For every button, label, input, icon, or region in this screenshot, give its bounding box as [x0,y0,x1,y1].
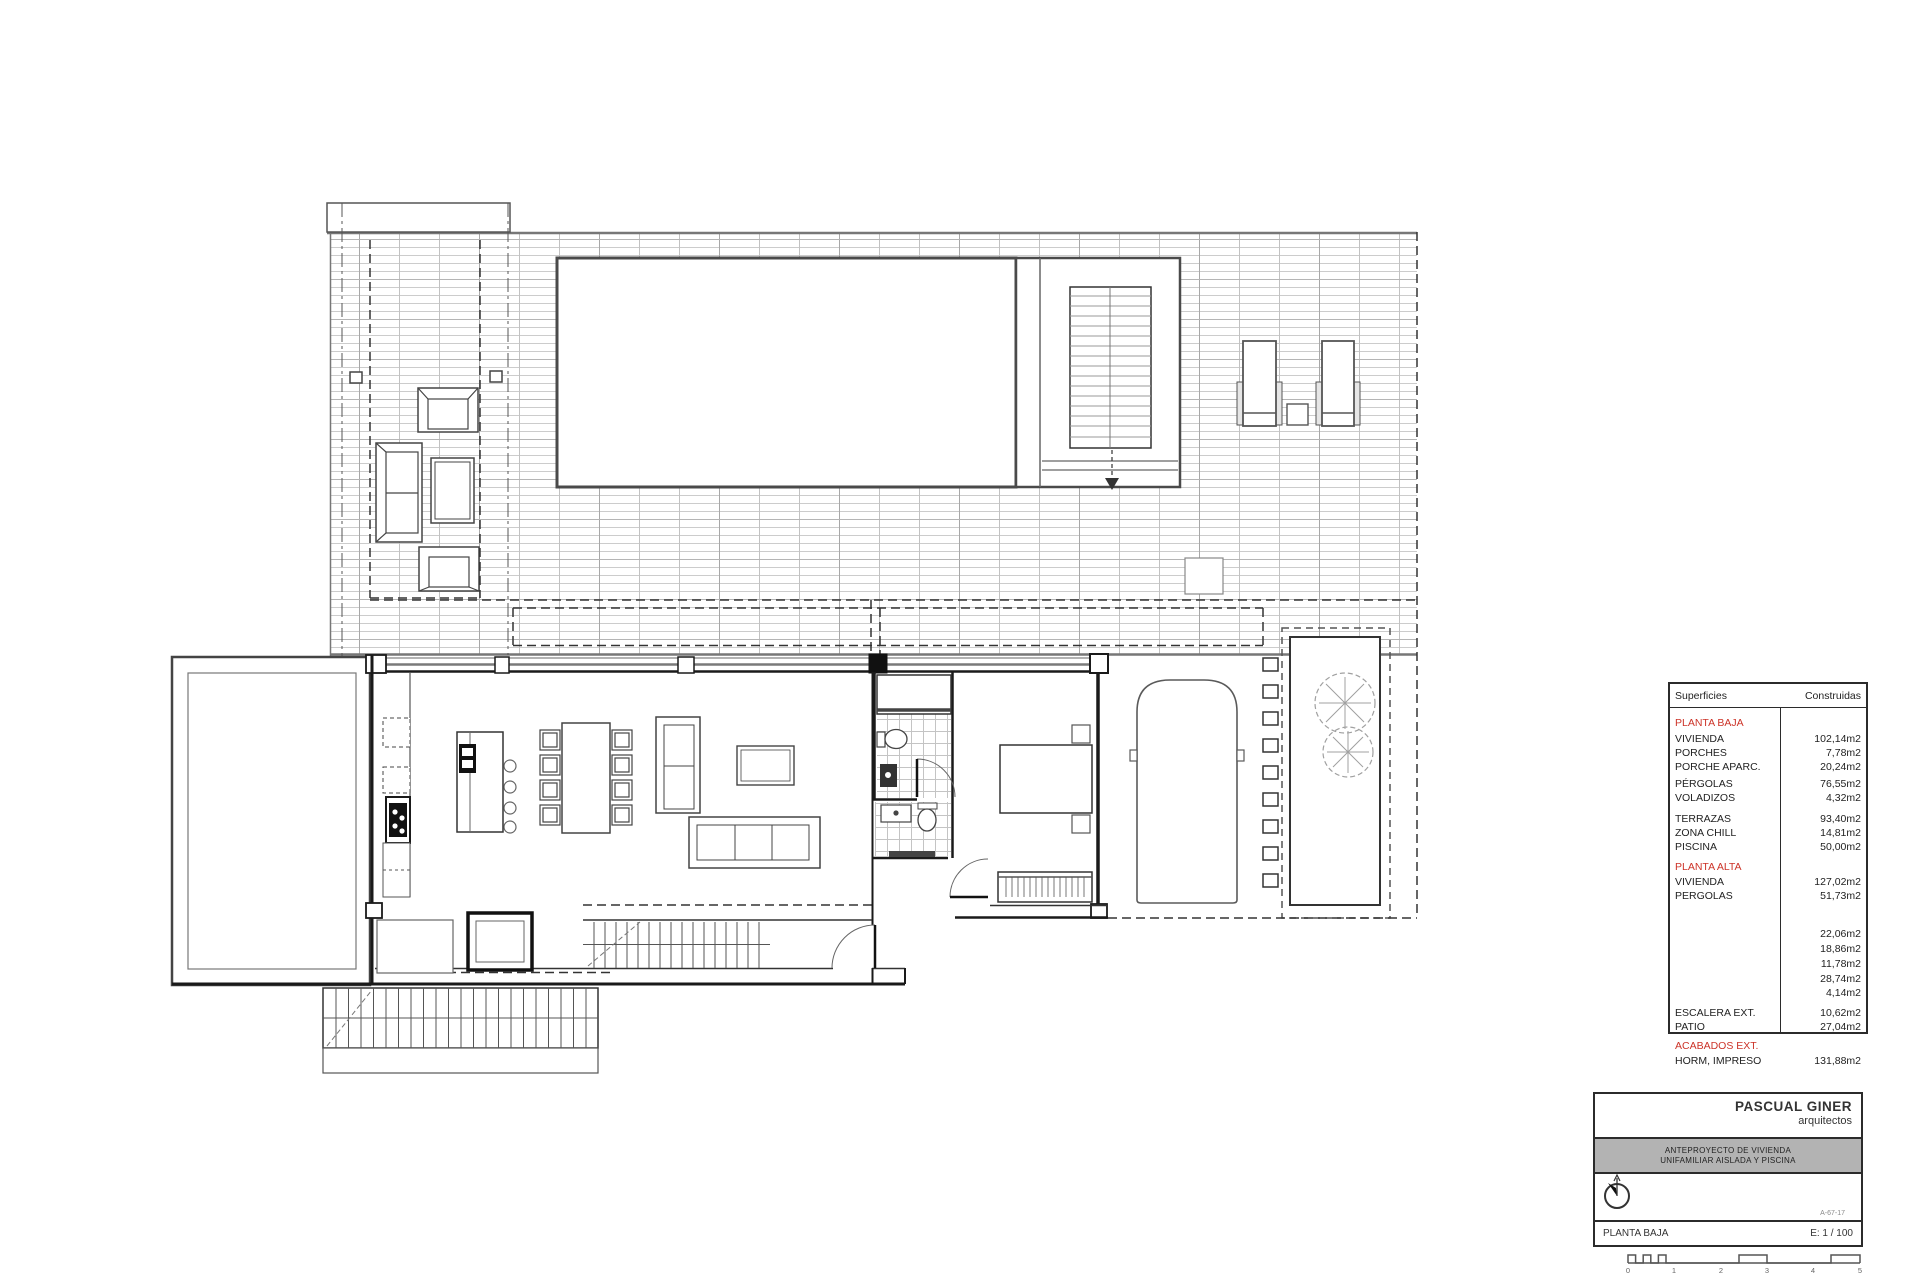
pergola-post [350,372,362,383]
threshold [889,851,935,857]
dining-set [540,723,632,833]
table-header-col1: Superficies [1675,690,1727,703]
north-arrow-icon [1595,1174,1639,1214]
kitchen-cabinet [383,767,410,793]
table-row: 22,06m2 [1670,928,1866,941]
table-row: VOLADIZOS4,32m2 [1670,792,1866,805]
slat-screen [1263,658,1278,887]
surfaces-table: Superficies Construidas PLANTA BAJA VIVI… [1668,682,1868,1034]
door-swing [950,859,988,897]
outdoor-armchair [419,547,479,591]
scale-bar-label: 0 [1623,1266,1633,1275]
table-row: PÉRGOLAS76,55m2 [1670,778,1866,791]
table-row: PORCHE APARC.20,24m2 [1670,761,1866,774]
wardrobe [998,872,1092,902]
drawing-name: PLANTA BAJA [1603,1228,1668,1239]
outdoor-armchair [418,388,478,432]
table-row: ACABADOS EXT. [1670,1040,1866,1053]
table-row: 18,86m2 [1670,943,1866,956]
toilet [918,803,937,831]
living-room [656,717,820,868]
firm-name: PASCUAL GINER [1735,1099,1852,1114]
toilet [877,730,907,749]
table-row: PERGOLAS51,73m2 [1670,890,1866,903]
nightstand [1072,815,1090,833]
lounger-side-table [1287,404,1308,425]
left-patio [172,657,370,985]
cooktop [386,797,410,843]
table-row: PORCHES7,78m2 [1670,747,1866,760]
table-row: PATIO27,04m2 [1670,1021,1866,1034]
floor-plan-svg [0,0,1920,1280]
table-row: 28,74m2 [1670,973,1866,986]
project-title-line2: UNIFAMILIAR AISLADA Y PISCINA [1660,1156,1796,1166]
swimming-pool [557,258,1016,487]
coffee-table [737,746,794,785]
outdoor-table [1185,558,1223,594]
bathroom-2 [873,800,988,897]
project-title-line1: ANTEPROYECTO DE VIVIENDA [1665,1146,1791,1156]
door-swing [832,925,875,968]
floor-plan-sheet: Superficies Construidas PLANTA BAJA VIVI… [0,0,1920,1280]
pergola-post [490,371,502,382]
scale-bar-label: 3 [1762,1266,1772,1275]
bed [1000,745,1092,813]
firm-subtitle: arquitectos [1798,1115,1852,1127]
car [1130,680,1244,903]
outdoor-sofa [376,443,422,542]
sofa-l-shape [656,717,820,868]
car-mirror [1130,750,1137,761]
sink [880,764,897,787]
scale-bar-label: 5 [1855,1266,1865,1275]
bedroom [998,725,1092,902]
shower [877,675,951,714]
kitchen [383,672,516,897]
table-row: 4,14m2 [1670,987,1866,1000]
scale-bar-graphic [1628,1255,1860,1263]
sheet-reference: A-67-17 [1820,1210,1845,1217]
shaft [468,913,532,970]
nightstand [1072,725,1090,743]
table-header-divider [1670,707,1866,708]
exterior-stairs [323,988,598,1073]
table-row: 11,78m2 [1670,958,1866,971]
table-row: VIVIENDA102,14m2 [1670,733,1866,746]
kitchen-cabinet [383,718,410,747]
dining-table [562,723,610,833]
title-block-bottom: PLANTA BAJA E: 1 / 100 [1595,1220,1861,1245]
bar-stools [504,760,516,833]
table-row: PISCINA50,00m2 [1670,841,1866,854]
title-block: PASCUAL GINER arquitectos ANTEPROYECTO D… [1593,1092,1863,1247]
scale-bar-label: 2 [1716,1266,1726,1275]
table-row: HORM, IMPRESO131,88m2 [1670,1055,1866,1068]
kitchen-island [457,732,503,832]
title-block-firm: PASCUAL GINER arquitectos [1595,1094,1861,1137]
bathroom-1 [873,672,955,800]
interior-stair [583,920,875,968]
planter-box [327,203,510,232]
pool-deck-structure [1016,258,1180,490]
table-row: TERRAZAS93,40m2 [1670,813,1866,826]
table-header-col2: Construidas [1805,690,1861,703]
project-title-band: ANTEPROYECTO DE VIVIENDA UNIFAMILIAR AIS… [1595,1137,1861,1174]
table-row: ESCALERA EXT.10,62m2 [1670,1007,1866,1020]
table-row: ZONA CHILL14,81m2 [1670,827,1866,840]
patio-trees [1282,628,1390,918]
drawing-scale: E: 1 / 100 [1810,1228,1853,1239]
title-block-middle: A-67-17 [1595,1174,1861,1220]
sink [881,805,911,822]
scale-bar-label: 4 [1808,1266,1818,1275]
scale-bar-label: 1 [1669,1266,1679,1275]
table-row: PLANTA BAJA [1670,717,1866,730]
carport [1130,658,1278,903]
tree [1323,727,1373,777]
car-mirror [1237,750,1244,761]
table-row: VIVIENDA127,02m2 [1670,876,1866,889]
table-row: PLANTA ALTA [1670,861,1866,874]
storage-room [377,920,453,973]
outdoor-coffee-table [431,458,474,523]
